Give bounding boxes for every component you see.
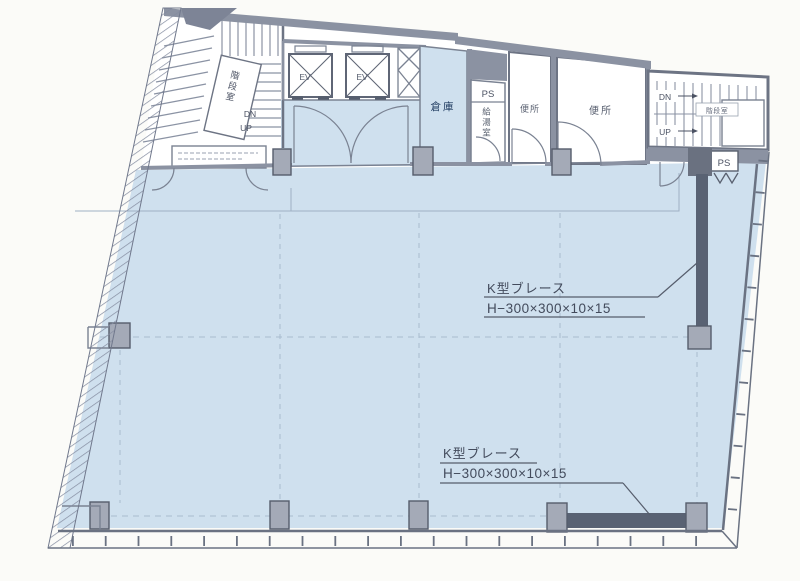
column	[413, 147, 433, 175]
annotation-text: K型ブレース	[443, 446, 522, 461]
bottom-boundary-wall	[48, 531, 737, 548]
duct-shaft	[398, 48, 420, 97]
column	[270, 501, 289, 529]
column	[273, 149, 291, 175]
k-brace-horizontal	[565, 513, 688, 528]
stair-right-up-label: UP	[659, 127, 671, 137]
k-brace-vertical	[696, 174, 708, 328]
annotation-text: H−300×300×10×15	[487, 301, 611, 316]
stair-left-dn-label: DN	[244, 109, 256, 119]
right-stairwell: DN UP 階段室	[648, 71, 768, 150]
annotation-text: H−300×300×10×15	[443, 466, 567, 481]
wall-block-above-ps	[467, 49, 507, 81]
ps-right-label: PS	[718, 158, 731, 169]
column	[409, 501, 428, 529]
toilet-2: 便所	[557, 57, 646, 164]
toilet-1: 便所	[509, 52, 551, 163]
stair-left-up-label: UP	[240, 123, 252, 133]
column	[686, 503, 707, 532]
brace-anchor-block	[688, 148, 712, 176]
ev1-label: EV	[299, 72, 311, 82]
floor-plan-page: DN UP EV EV	[0, 0, 800, 581]
kitchenette-label: 給湯室	[482, 107, 491, 139]
toilet-2-label: 便所	[589, 104, 613, 117]
toilet-1-label: 便所	[520, 103, 540, 114]
ps-core-label: PS	[482, 89, 495, 100]
column	[547, 503, 567, 532]
ev2-label: EV	[356, 72, 368, 82]
stair-right-name-label: 階段室	[706, 106, 729, 115]
column	[552, 149, 571, 175]
elevator-2: EV	[346, 54, 389, 97]
floor-plan-canvas: DN UP EV EV	[0, 0, 800, 581]
stair-right-dn-label: DN	[659, 92, 671, 102]
annotation-text: K型ブレース	[487, 281, 566, 296]
column	[688, 326, 711, 349]
storage-label: 倉庫	[431, 100, 456, 113]
elevator-1: EV	[289, 54, 332, 97]
